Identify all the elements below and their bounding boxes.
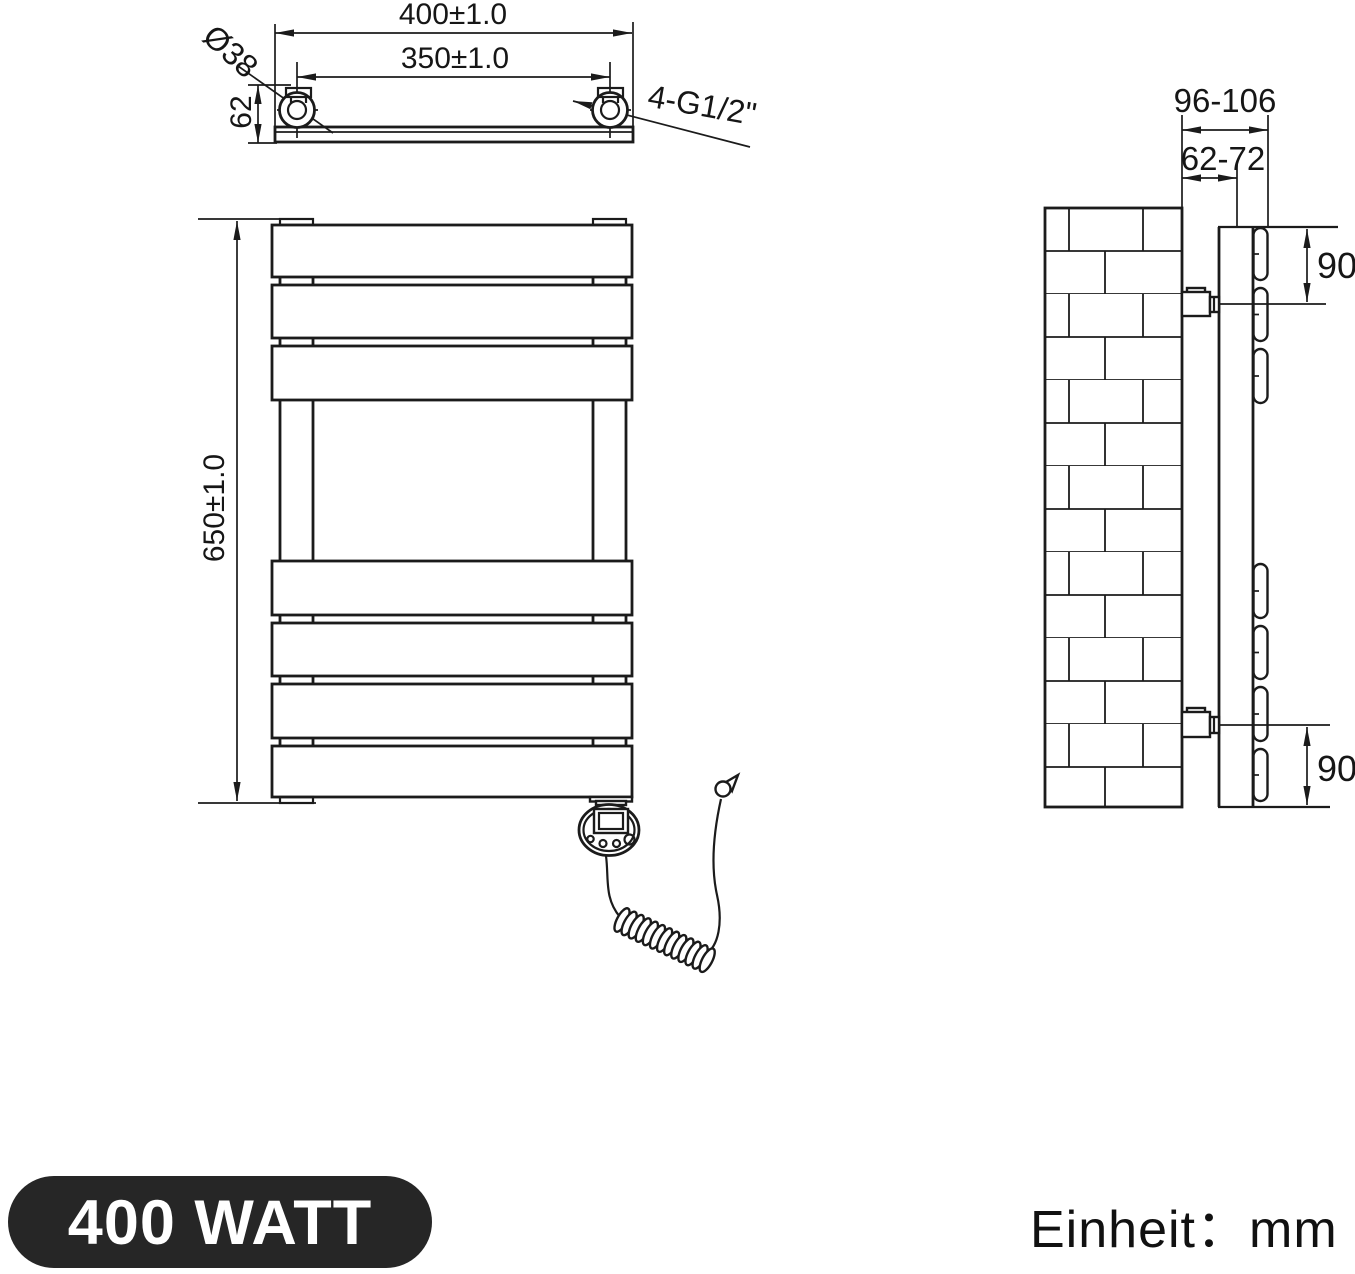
radiator-panel: [272, 746, 632, 797]
front-view: 650±1.0: [198, 219, 738, 974]
side-view: 96-106 62-72: [1045, 82, 1355, 807]
units-label: Einheit：mm: [1030, 1201, 1338, 1259]
heater-cable: [705, 799, 721, 955]
heating-element: [579, 775, 738, 974]
brick-wall-fill: [1045, 208, 1182, 807]
dim-top-port-offset-label: 90: [1317, 245, 1355, 286]
bottom-foot-left: [280, 797, 313, 803]
dim-tube-diameter-label: Ø38: [196, 18, 265, 85]
heater-cable: [606, 856, 620, 917]
radiator-panel: [272, 346, 632, 400]
radiator-panel: [272, 225, 632, 277]
towel-radiator-drawing: 400±1.0 350±1.0 62 Ø38 4-G1/2" 650±1.0: [0, 0, 1355, 1274]
dim-wall-to-bracket-label: 62-72: [1181, 140, 1265, 177]
radiator-panel: [272, 561, 632, 615]
radiator-panel: [272, 285, 632, 338]
plug: [716, 782, 731, 797]
bracket-body: [1182, 292, 1210, 316]
footer: 400 WATT Einheit：mm: [8, 1176, 1338, 1268]
dim-hole-spacing-label: 350±1.0: [401, 42, 509, 75]
technical-drawing-page: 400±1.0 350±1.0 62 Ø38 4-G1/2" 650±1.0: [0, 0, 1355, 1274]
radiator-panel: [272, 684, 632, 738]
bracket-body: [1182, 712, 1210, 737]
panel-slots: [1254, 228, 1268, 801]
power-badge-label: 400 WATT: [68, 1188, 372, 1258]
dim-wall-to-front-label: 96-106: [1174, 82, 1277, 119]
dim-bottom-port-offset-label: 90: [1317, 748, 1355, 789]
dim-height-total-label: 650±1.0: [198, 454, 231, 562]
dim-depth-label: 62: [225, 95, 258, 128]
top-view: 400±1.0 350±1.0 62 Ø38 4-G1/2": [196, 0, 759, 147]
radiator-panel: [272, 623, 632, 676]
dim-width-total-label: 400±1.0: [399, 0, 507, 31]
coiled-cable: [611, 906, 717, 974]
